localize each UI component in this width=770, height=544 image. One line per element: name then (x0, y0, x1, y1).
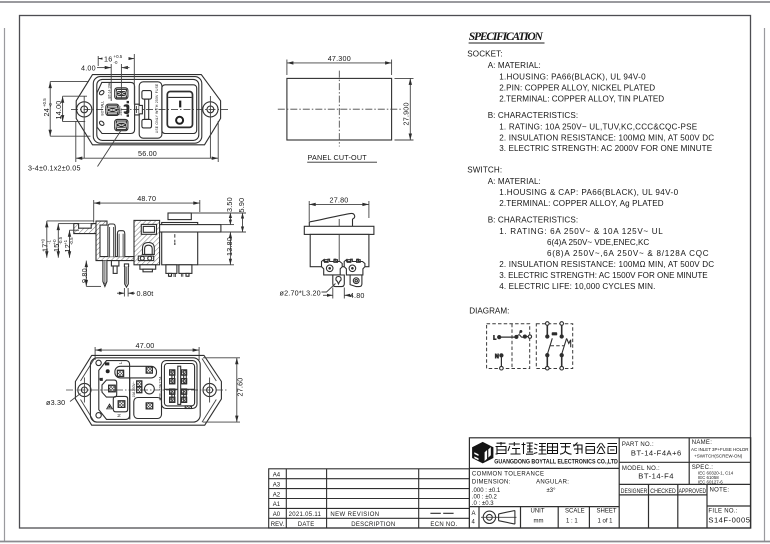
svg-text:+SWITCH(SCREW-ON): +SWITCH(SCREW-ON) (694, 453, 743, 458)
svg-text:3. ELECTRIC STRENGTH: AC 2: 3. ELECTRIC STRENGTH: AC 2000V FOR ONE M… (499, 144, 713, 153)
svg-text:N: N (495, 354, 499, 360)
svg-text:27.60: 27.60 (235, 378, 244, 397)
svg-text:47.00: 47.00 (136, 341, 155, 350)
svg-text:16: 16 (104, 55, 112, 64)
svg-text:3. ELECTRIC STRENGTH: AC 1: 3. ELECTRIC STRENGTH: AC 1500V FOR ONE M… (499, 271, 708, 280)
svg-text:48.70: 48.70 (137, 194, 156, 203)
svg-text:ø3.30: ø3.30 (46, 398, 65, 407)
svg-text:SHEET: SHEET (597, 508, 617, 514)
svg-text:A2: A2 (273, 492, 281, 498)
svg-text:3-4±0.1x2±0.05: 3-4±0.1x2±0.05 (28, 163, 81, 172)
svg-text:.0 : ±0.3: .0 : ±0.3 (472, 501, 494, 507)
svg-text:+1: +1 (63, 239, 68, 245)
svg-text:-0: -0 (48, 103, 53, 107)
svg-text:A3: A3 (273, 482, 281, 488)
svg-text:SWITCH:: SWITCH: (467, 166, 502, 175)
svg-text:-0: -0 (114, 60, 118, 65)
svg-text:SPECIFICATION: SPECIFICATION (469, 30, 544, 43)
svg-text:1 : 1: 1 : 1 (566, 519, 578, 525)
svg-text:1.HOUSING: PA66(BLACK), UL: 1.HOUSING: PA66(BLACK), UL 94V-0 (499, 72, 646, 81)
svg-text:REV.: REV. (271, 522, 285, 528)
svg-text:.00 : ±0.2: .00 : ±0.2 (472, 494, 498, 500)
svg-text:DESIGNER: DESIGNER (621, 489, 648, 495)
svg-text:GUANGDONG BOYTALL ELECTRONICS: GUANGDONG BOYTALL ELECTRONICS CO.,LTD (494, 458, 618, 465)
svg-text:+0: +0 (52, 239, 57, 245)
svg-text:NEW REVISION: NEW REVISION (330, 512, 379, 518)
svg-text:14.00: 14.00 (54, 101, 63, 120)
svg-text:13.80: 13.80 (225, 237, 234, 256)
svg-text:10A 250V~: 10A 250V~ (132, 381, 136, 397)
svg-text:6(4)A 250V~ VDE,ENEC,KC: 6(4)A 250V~ VDE,ENEC,KC (547, 238, 649, 247)
svg-text:1.HOUSING & CAP: PA66(BLACK: 1.HOUSING & CAP: PA66(BLACK), UL 94V-0 (499, 188, 678, 197)
svg-text:+0: +0 (41, 238, 46, 244)
svg-text:6(8)A 250V~,6A 250V~ & 8/1: 6(8)A 250V~,6A 250V~ & 8/128A CQC (547, 249, 709, 258)
svg-text:DIAGRAM:: DIAGRAM: (469, 306, 509, 315)
svg-text:+0.5: +0.5 (42, 98, 47, 107)
svg-text:COMMON TOLERANCE: COMMON TOLERANCE (472, 472, 545, 478)
svg-text:BT-14 10A: BT-14 10A (107, 82, 111, 98)
svg-text:AC INLET 3P+FUSE HOLDR: AC INLET 3P+FUSE HOLDR (691, 447, 749, 452)
svg-text:NAME:: NAME: (692, 440, 713, 446)
svg-text:24: 24 (42, 108, 51, 116)
svg-text:-0.5: -0.5 (69, 237, 74, 245)
svg-text:SCALE: SCALE (565, 508, 585, 514)
svg-text:A: MATERIAL:: A: MATERIAL: (488, 177, 541, 186)
svg-text:PART NO.:: PART NO.: (622, 442, 654, 448)
svg-text:2. INSULATION RESISTANCE: 1: 2. INSULATION RESISTANCE: 100MΩ MIN, AT … (499, 260, 714, 269)
svg-text:A: A (472, 511, 476, 517)
svg-text:3.50: 3.50 (225, 197, 234, 212)
svg-text:BOYTALL: BOYTALL (101, 101, 105, 116)
svg-text:1 of 1: 1 of 1 (598, 519, 614, 525)
svg-text:ANGULAR:: ANGULAR: (536, 479, 569, 485)
svg-text:47.300: 47.300 (328, 54, 351, 63)
svg-text:BT-14-F4: BT-14-F4 (638, 472, 674, 481)
svg-text:S14F-0005: S14F-0005 (708, 515, 750, 524)
svg-text:ø2.70*L3.20: ø2.70*L3.20 (280, 288, 321, 297)
svg-text:UNIT: UNIT (531, 508, 545, 514)
svg-text:4.80: 4.80 (350, 291, 365, 300)
svg-text:2.PIN: COPPER ALLOY, NICKEL: 2.PIN: COPPER ALLOY, NICKEL PLATED (499, 83, 655, 92)
svg-text:2.TERMINAL: COPPER ALLOY, T: 2.TERMINAL: COPPER ALLOY, TIN PLATED (499, 94, 664, 103)
svg-text:DESCRIPTION: DESCRIPTION (351, 522, 395, 528)
svg-text:N: N (116, 414, 121, 417)
svg-text:NOTE:: NOTE: (710, 487, 730, 493)
svg-text:A4: A4 (273, 473, 281, 479)
svg-text:DIMENSION:: DIMENSION: (472, 479, 511, 485)
svg-text:250V~: 250V~ (119, 106, 123, 116)
svg-text:+0.5: +0.5 (114, 54, 123, 59)
svg-text:ECN NO.: ECN NO. (430, 522, 457, 528)
svg-text:4.00: 4.00 (81, 63, 96, 72)
svg-text:A1: A1 (273, 502, 281, 508)
svg-text:9.80: 9.80 (80, 268, 89, 283)
svg-text:-1: -1 (47, 240, 52, 244)
svg-text:USE ONLY WITH 250V FUSE: USE ONLY WITH 250V FUSE (155, 83, 159, 133)
svg-text:A: MATERIAL:: A: MATERIAL: (488, 61, 541, 70)
svg-text:2021.05.11: 2021.05.11 (289, 512, 322, 518)
svg-text:2.TERMINAL: COPPER ALLOY, A: 2.TERMINAL: COPPER ALLOY, Ag PLATED (499, 199, 664, 208)
svg-text:B: CHARACTERISTICS:: B: CHARACTERISTICS: (488, 216, 579, 225)
svg-text:2. INSULATION RESISTANCE: 1: 2. INSULATION RESISTANCE: 100MΩ MIN, AT … (499, 133, 714, 142)
svg-text:A0: A0 (273, 512, 281, 518)
svg-text:1. RATING: 6A 250V~ & 10A: 1. RATING: 6A 250V~ & 10A 125V~ UL (499, 227, 663, 236)
svg-text:APPROVED: APPROVED (679, 489, 707, 495)
svg-text:5.90: 5.90 (237, 198, 246, 213)
svg-text:IEC 60127-6: IEC 60127-6 (698, 480, 723, 485)
svg-text:L: L (493, 336, 496, 342)
svg-text:4. ELECTRIC LIFE: 10,000 C: 4. ELECTRIC LIFE: 10,000 CYCLES MIN. (499, 282, 655, 291)
svg-text:CHECKED: CHECKED (650, 489, 676, 495)
svg-text:56.00: 56.00 (138, 149, 157, 158)
svg-text:BT-14-F4A+6: BT-14-F4A+6 (631, 448, 682, 457)
svg-text:27.80: 27.80 (330, 195, 349, 204)
svg-text:27.900: 27.900 (401, 102, 410, 125)
svg-text:FILE NO.:: FILE NO.: (708, 509, 737, 515)
svg-text:PANEL CUT-OUT: PANEL CUT-OUT (308, 153, 368, 162)
svg-text:mm: mm (534, 519, 544, 525)
svg-text:SOCKET:: SOCKET: (467, 50, 502, 59)
svg-text:B: CHARACTERISTICS:: B: CHARACTERISTICS: (488, 111, 579, 120)
svg-text:.000 : ±0.1: .000 : ±0.1 (472, 488, 501, 494)
svg-text:DATE: DATE (298, 522, 315, 528)
svg-text:0.80t: 0.80t (137, 289, 154, 298)
svg-text:±3°: ±3° (547, 488, 557, 494)
svg-text:250V~ 10A 2.5A: 250V~ 10A 2.5A (159, 376, 163, 401)
svg-text:1. RATING: 10A 250V~ UL,TU: 1. RATING: 10A 250V~ UL,TUV,KC,CCC&CQC-P… (499, 122, 698, 131)
